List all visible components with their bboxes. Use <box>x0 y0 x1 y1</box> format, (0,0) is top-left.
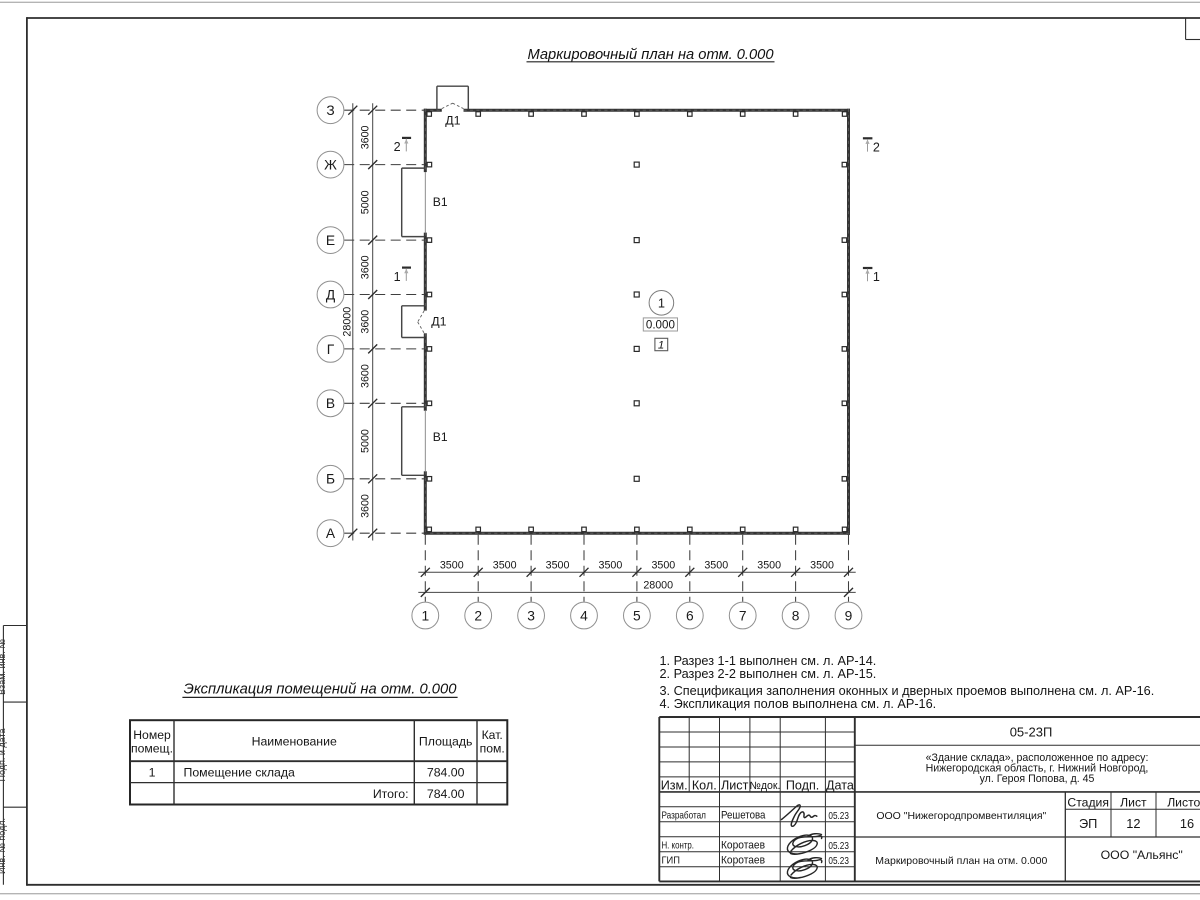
svg-text:4: 4 <box>580 608 588 623</box>
svg-text:Изм.: Изм. <box>661 778 688 792</box>
svg-text:Помещение склада: Помещение склада <box>184 766 296 780</box>
svg-text:1: 1 <box>873 270 880 284</box>
svg-text:784.00: 784.00 <box>427 787 465 801</box>
svg-text:4. Экспликация полов выполнена: 4. Экспликация полов выполнена см. л. АР… <box>660 697 937 711</box>
svg-text:Подп. и дата: Подп. и дата <box>0 728 7 781</box>
svg-text:Маркировочный план на отм. 0.0: Маркировочный план на отм. 0.000 <box>875 855 1047 867</box>
svg-text:28000: 28000 <box>643 579 673 591</box>
svg-text:помещ.: помещ. <box>131 741 173 755</box>
svg-text:Д: Д <box>326 287 336 302</box>
svg-text:Листов: Листов <box>1167 796 1200 810</box>
svg-text:1: 1 <box>421 608 429 623</box>
svg-text:Коротаев: Коротаев <box>721 839 765 851</box>
svg-text:ул. Героя Попова, д. 45: ул. Героя Попова, д. 45 <box>980 773 1095 785</box>
svg-text:3: 3 <box>527 608 535 623</box>
svg-text:05.23: 05.23 <box>828 841 849 852</box>
svg-text:Подп.: Подп. <box>786 778 819 792</box>
svg-text:16: 16 <box>1180 816 1194 831</box>
svg-text:Экспликация помещений на отм.: Экспликация помещений на отм. 0.000 <box>184 681 458 697</box>
svg-text:ООО "Нижегородпромвентиляция": ООО "Нижегородпромвентиляция" <box>876 810 1046 822</box>
svg-text:Лист: Лист <box>1120 796 1147 810</box>
svg-text:Д1: Д1 <box>431 314 446 328</box>
svg-text:Итого:: Итого: <box>373 787 409 801</box>
svg-text:Кат.: Кат. <box>482 728 503 742</box>
svg-text:0.000: 0.000 <box>646 319 675 332</box>
svg-text:9: 9 <box>845 608 853 623</box>
svg-text:Г: Г <box>327 342 335 357</box>
svg-text:6: 6 <box>686 608 694 623</box>
svg-text:1: 1 <box>149 766 156 780</box>
svg-text:Лист: Лист <box>721 778 749 792</box>
svg-text:3500: 3500 <box>599 560 623 572</box>
svg-text:В: В <box>326 396 335 411</box>
svg-text:3500: 3500 <box>757 560 781 572</box>
svg-text:3600: 3600 <box>360 125 372 149</box>
svg-text:3500: 3500 <box>546 560 570 572</box>
svg-text:3600: 3600 <box>360 255 372 279</box>
svg-text:28000: 28000 <box>342 307 354 337</box>
svg-text:8: 8 <box>792 608 800 623</box>
svg-text:Б: Б <box>326 472 335 487</box>
svg-text:Ж: Ж <box>324 158 337 173</box>
svg-text:5: 5 <box>633 608 641 623</box>
svg-text:Номер: Номер <box>133 728 171 742</box>
svg-text:ГИП: ГИП <box>662 855 681 866</box>
svg-text:2: 2 <box>873 140 880 154</box>
svg-text:05-23П: 05-23П <box>1010 725 1053 740</box>
svg-text:1: 1 <box>658 340 664 352</box>
svg-text:05.23: 05.23 <box>828 811 849 822</box>
svg-text:Коротаев: Коротаев <box>721 854 765 866</box>
svg-text:№док.: №док. <box>749 780 780 792</box>
svg-text:З: З <box>326 103 334 118</box>
svg-text:Д1: Д1 <box>445 113 460 127</box>
svg-text:Дата: Дата <box>826 778 854 792</box>
svg-text:1: 1 <box>394 270 401 284</box>
svg-text:Кол.: Кол. <box>692 778 717 792</box>
svg-text:Площадь: Площадь <box>419 734 473 748</box>
svg-text:3500: 3500 <box>440 560 464 572</box>
svg-text:784.00: 784.00 <box>427 766 465 780</box>
svg-text:В1: В1 <box>433 195 448 209</box>
svg-text:Маркировочный план на отм. 0.0: Маркировочный план на отм. 0.000 <box>527 47 774 63</box>
svg-text:ЭП: ЭП <box>1079 816 1097 831</box>
svg-text:5000: 5000 <box>360 429 372 453</box>
svg-text:ООО "Альянс": ООО "Альянс" <box>1101 848 1183 862</box>
svg-text:Разработал: Разработал <box>662 810 706 822</box>
svg-text:5000: 5000 <box>360 190 372 214</box>
svg-text:12: 12 <box>1126 816 1140 831</box>
svg-text:Е: Е <box>326 233 335 248</box>
svg-text:Решетова: Решетова <box>721 810 766 822</box>
svg-text:3600: 3600 <box>360 364 372 388</box>
svg-text:А: А <box>326 526 336 541</box>
svg-text:05.23: 05.23 <box>828 856 849 867</box>
svg-text:В1: В1 <box>433 430 448 444</box>
svg-text:Наименование: Наименование <box>252 734 337 748</box>
svg-text:Взам. инв. №: Взам. инв. № <box>0 639 7 695</box>
svg-text:пом.: пом. <box>480 741 505 755</box>
svg-text:Стадия: Стадия <box>1067 796 1109 810</box>
svg-text:3500: 3500 <box>704 560 728 572</box>
svg-text:3600: 3600 <box>360 494 372 518</box>
svg-text:Инв. № подл.: Инв. № подл. <box>0 818 7 874</box>
svg-text:2: 2 <box>394 140 401 154</box>
svg-text:1: 1 <box>658 295 665 310</box>
svg-text:3500: 3500 <box>493 560 517 572</box>
svg-text:7: 7 <box>739 608 747 623</box>
svg-text:1. Разрез 1-1 выполнен см. л.: 1. Разрез 1-1 выполнен см. л. АР-14. <box>660 654 877 668</box>
svg-text:3600: 3600 <box>360 310 372 334</box>
svg-text:2. Разрез 2-2 выполнен см. л.: 2. Разрез 2-2 выполнен см. л. АР-15. <box>660 667 877 681</box>
svg-text:Н. контр.: Н. контр. <box>662 840 695 851</box>
svg-text:2: 2 <box>474 608 482 623</box>
svg-text:3500: 3500 <box>810 560 834 572</box>
svg-text:3500: 3500 <box>651 560 675 572</box>
